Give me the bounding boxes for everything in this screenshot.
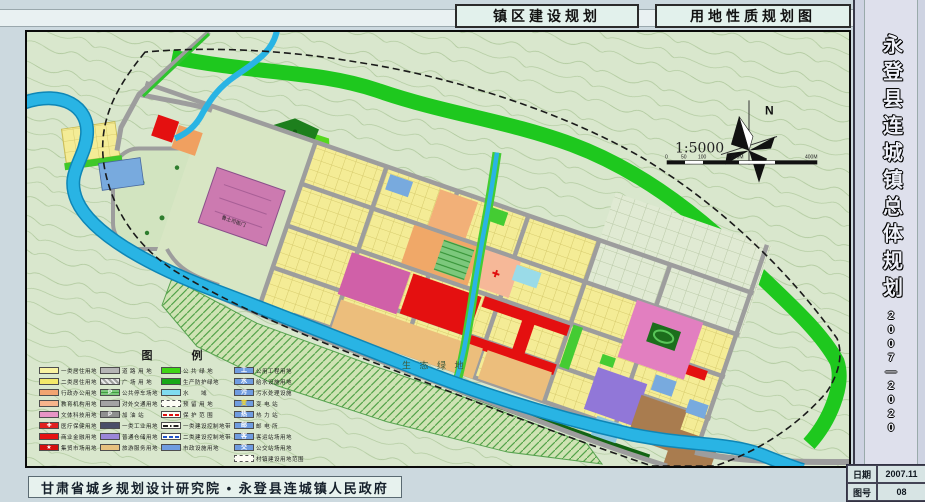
legend-item: 交公交站场用地 xyxy=(234,443,304,452)
legend-column: 一类居住用地二类居住用地行政办公用地教育机构用地文体科技用地✚医疗保健用地商业金… xyxy=(39,366,97,463)
map-frame: ✚ xyxy=(25,30,851,468)
svg-text:50: 50 xyxy=(681,155,687,161)
legend-item-label: 二类居住用地 xyxy=(61,378,97,386)
legend-item-label: 广 场 用 地 xyxy=(122,378,152,386)
date-value: 2007.11 xyxy=(877,465,925,483)
legend-item: 商业金融用地 xyxy=(39,432,97,441)
legend-swatch xyxy=(161,367,181,374)
legend-item: 教育机构用地 xyxy=(39,399,97,408)
map-series-title: 镇区建设规划 xyxy=(455,4,639,28)
legend-item-label: 普通仓储用地 xyxy=(122,433,158,441)
legend-swatch xyxy=(39,411,59,418)
legend-item-label: 道 路 用 地 xyxy=(122,367,152,375)
credit-box: 甘肃省城乡规划设计研究院 • 永登县连城镇人民政府 xyxy=(28,476,402,498)
legend-item-label: 邮 电 所 xyxy=(256,422,278,430)
legend-swatch xyxy=(39,400,59,407)
legend-swatch-icon: 交 xyxy=(241,445,247,451)
legend-swatch xyxy=(161,400,181,407)
legend-item: 生产防护绿地 xyxy=(161,377,231,386)
legend-item-label: 预 留 用 地 xyxy=(183,400,213,408)
legend-item-label: 保 护 范 围 xyxy=(183,411,213,419)
legend-item-label: 文体科技用地 xyxy=(61,411,97,419)
legend-swatch: 变 xyxy=(234,400,254,407)
legend-item-label: 行政办公用地 xyxy=(61,389,97,397)
legend-item-label: 旅游服务用地 xyxy=(122,444,158,452)
legend-swatch xyxy=(100,400,120,407)
legend-item: 行政办公用地 xyxy=(39,388,97,397)
legend-swatch: 热 xyxy=(234,411,254,418)
legend-item: 二类建设控制地带 xyxy=(161,432,231,441)
legend-item: 水 域 xyxy=(161,388,231,397)
legend-item: 二类居住用地 xyxy=(39,377,97,386)
legend-swatch xyxy=(100,444,120,451)
legend-item: ★集贸市场用地 xyxy=(39,443,97,452)
legend-swatch xyxy=(161,444,181,451)
legend-item-label: 加 油 站 xyxy=(122,411,144,419)
legend-item-label: 市政设施用地 xyxy=(183,444,219,452)
legend-swatch xyxy=(100,378,120,385)
legend-item-label: 变 电 站 xyxy=(256,400,278,408)
legend-item-label: 公共停车场地 xyxy=(122,389,158,397)
legend-item-label: 二类建设控制地带 xyxy=(183,433,231,441)
legend-title: 图 例 xyxy=(39,347,319,363)
legend-swatch xyxy=(100,422,120,429)
legend-swatch-icon: 水 xyxy=(241,379,247,385)
legend-column: 道 路 用 地广 场 用 地P公共停车场地对外交通用地P加 油 站一类工业用地普… xyxy=(100,366,158,463)
legend-swatch: 客 xyxy=(234,433,254,440)
legend-item-label: 生产防护绿地 xyxy=(183,378,219,386)
legend-item-label: 水 域 xyxy=(183,389,207,397)
legend-swatch-icon: 热 xyxy=(241,412,247,418)
legend-item: 热热 力 站 xyxy=(234,410,304,419)
legend-item: 村镇建设用地范围 xyxy=(234,454,304,463)
legend-swatch xyxy=(39,389,59,396)
legend-column: 工公用工程用地水给水设施用地污污水处理设施变变 电 站热热 力 站邮邮 电 所客… xyxy=(234,366,304,463)
sheet-number-label: 图号 xyxy=(847,483,877,501)
svg-text:100: 100 xyxy=(698,155,707,161)
legend-swatch: ✚ xyxy=(39,422,59,429)
legend-item: 工公用工程用地 xyxy=(234,366,304,375)
info-table: 日期 2007.11 图号 08 xyxy=(846,464,925,502)
legend-item: 保 护 范 围 xyxy=(161,410,231,419)
legend-item: 市政设施用地 xyxy=(161,443,231,452)
legend-item-label: 热 力 站 xyxy=(256,411,278,419)
legend-swatch-icon: 邮 xyxy=(241,423,247,429)
legend-swatch xyxy=(161,422,181,429)
legend-item: 污污水处理设施 xyxy=(234,388,304,397)
legend-swatch-icon: 客 xyxy=(241,434,247,440)
legend-item-label: 对外交通用地 xyxy=(122,400,158,408)
legend-swatch: 污 xyxy=(234,389,254,396)
legend-item-label: 村镇建设用地范围 xyxy=(256,455,304,463)
legend-swatch xyxy=(161,411,181,418)
svg-text:400M: 400M xyxy=(805,155,817,161)
date-label: 日期 xyxy=(847,465,877,483)
legend-swatch: 水 xyxy=(234,378,254,385)
legend-item: 公 共 绿 地 xyxy=(161,366,231,375)
legend: 图 例 一类居住用地二类居住用地行政办公用地教育机构用地文体科技用地✚医疗保健用… xyxy=(39,347,319,463)
legend-item-label: 一类居住用地 xyxy=(61,367,97,375)
svg-text:0: 0 xyxy=(665,155,668,161)
legend-item: 变变 电 站 xyxy=(234,399,304,408)
sheet-title: 用地性质规划图 xyxy=(655,4,851,28)
legend-swatch xyxy=(100,433,120,440)
legend-item: ✚医疗保健用地 xyxy=(39,421,97,430)
plan-years-vertical: 2007—2020 xyxy=(885,310,897,436)
legend-swatch: 工 xyxy=(234,367,254,374)
legend-columns: 一类居住用地二类居住用地行政办公用地教育机构用地文体科技用地✚医疗保健用地商业金… xyxy=(39,366,319,463)
legend-swatch xyxy=(161,389,181,396)
legend-item: 广 场 用 地 xyxy=(100,377,158,386)
legend-swatch-icon: ✚ xyxy=(46,423,51,429)
legend-swatch: P xyxy=(100,389,120,396)
legend-swatch xyxy=(39,367,59,374)
legend-swatch xyxy=(234,455,254,462)
legend-swatch xyxy=(100,367,120,374)
legend-item: 水给水设施用地 xyxy=(234,377,304,386)
legend-item: P公共停车场地 xyxy=(100,388,158,397)
legend-item: 客客运站场用地 xyxy=(234,432,304,441)
legend-column: 公 共 绿 地生产防护绿地水 域预 留 用 地保 护 范 围一类建设控制地带二类… xyxy=(161,366,231,463)
sidebar: 永登县连城镇总体规划 2007—2020 xyxy=(853,0,925,464)
legend-item: 邮邮 电 所 xyxy=(234,421,304,430)
legend-item: 普通仓储用地 xyxy=(100,432,158,441)
north-label: N xyxy=(765,103,774,117)
legend-item-label: 一类工业用地 xyxy=(122,422,158,430)
legend-item-label: 一类建设控制地带 xyxy=(183,422,231,430)
legend-swatch: P xyxy=(100,411,120,418)
legend-swatch-icon: ★ xyxy=(46,445,51,451)
svg-text:200M: 200M xyxy=(731,155,743,161)
sheet-number-value: 08 xyxy=(877,483,925,501)
legend-item: 一类居住用地 xyxy=(39,366,97,375)
legend-item-label: 公用工程用地 xyxy=(256,367,292,375)
legend-swatch xyxy=(39,433,59,440)
legend-item-label: 集贸市场用地 xyxy=(61,444,97,452)
legend-item-label: 给水设施用地 xyxy=(256,378,292,386)
legend-item: 一类工业用地 xyxy=(100,421,158,430)
legend-item: 旅游服务用地 xyxy=(100,443,158,452)
legend-swatch-icon: P xyxy=(108,390,112,396)
legend-swatch: 邮 xyxy=(234,422,254,429)
legend-swatch xyxy=(161,378,181,385)
legend-swatch-icon: 变 xyxy=(241,401,247,407)
legend-item-label: 公 共 绿 地 xyxy=(183,367,213,375)
legend-item-label: 公交站场用地 xyxy=(256,444,292,452)
legend-item-label: 医疗保健用地 xyxy=(61,422,97,430)
legend-swatch xyxy=(161,433,181,440)
legend-swatch-icon: 污 xyxy=(241,390,247,396)
legend-item: 文体科技用地 xyxy=(39,410,97,419)
legend-item-label: 污水处理设施 xyxy=(256,389,292,397)
legend-item: P加 油 站 xyxy=(100,410,158,419)
legend-item: 一类建设控制地带 xyxy=(161,421,231,430)
page: { "header": { "left_title": "镇区建设规划", "r… xyxy=(0,0,925,500)
legend-swatch: 交 xyxy=(234,444,254,451)
legend-swatch-icon: P xyxy=(108,412,112,418)
legend-item-label: 教育机构用地 xyxy=(61,400,97,408)
legend-item-label: 客运站场用地 xyxy=(256,433,292,441)
legend-swatch xyxy=(39,378,59,385)
eco-area-label: 生 态 绿 地 xyxy=(402,360,466,371)
legend-swatch-icon: 工 xyxy=(241,368,247,374)
plan-title-vertical: 永登县连城镇总体规划 xyxy=(877,34,906,304)
legend-item-label: 商业金融用地 xyxy=(61,433,97,441)
legend-item: 对外交通用地 xyxy=(100,399,158,408)
legend-item: 预 留 用 地 xyxy=(161,399,231,408)
scale-bar xyxy=(667,161,817,165)
legend-swatch: ★ xyxy=(39,444,59,451)
sidebar-panel: 永登县连城镇总体规划 2007—2020 xyxy=(864,0,918,464)
legend-item: 道 路 用 地 xyxy=(100,366,158,375)
